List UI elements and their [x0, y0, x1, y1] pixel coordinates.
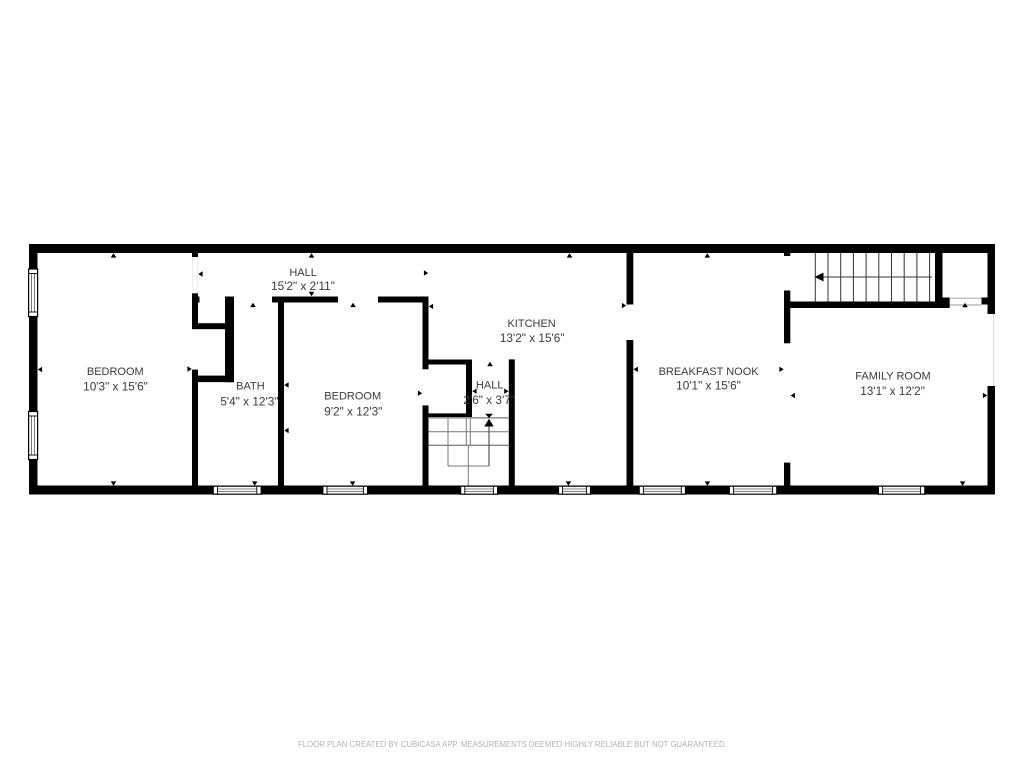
svg-text:FLOOR PLAN CREATED BY CUBICASA: FLOOR PLAN CREATED BY CUBICASA APP. MEAS…	[298, 740, 727, 749]
svg-text:10'1" x 15'6": 10'1" x 15'6"	[676, 379, 741, 393]
svg-text:HALL: HALL	[476, 380, 504, 392]
svg-text:BREAKFAST NOOK: BREAKFAST NOOK	[659, 366, 760, 378]
svg-text:13'2" x 15'6": 13'2" x 15'6"	[500, 331, 565, 345]
svg-text:9'2" x 12'3": 9'2" x 12'3"	[324, 405, 382, 419]
svg-text:BATH: BATH	[236, 381, 265, 393]
svg-text:5'4" x 12'3": 5'4" x 12'3"	[220, 394, 278, 408]
svg-text:10'3" x 15'6": 10'3" x 15'6"	[83, 380, 148, 394]
svg-text:BEDROOM: BEDROOM	[324, 390, 381, 402]
svg-text:BEDROOM: BEDROOM	[87, 366, 144, 378]
svg-text:KITCHEN: KITCHEN	[507, 318, 555, 330]
svg-text:15'2" x 2'11": 15'2" x 2'11"	[271, 279, 335, 293]
svg-text:2'6" x 3'7": 2'6" x 3'7"	[463, 393, 515, 407]
svg-text:HALL: HALL	[289, 267, 317, 279]
svg-text:FAMILY ROOM: FAMILY ROOM	[855, 370, 930, 382]
svg-text:13'1" x 12'2": 13'1" x 12'2"	[860, 384, 925, 398]
